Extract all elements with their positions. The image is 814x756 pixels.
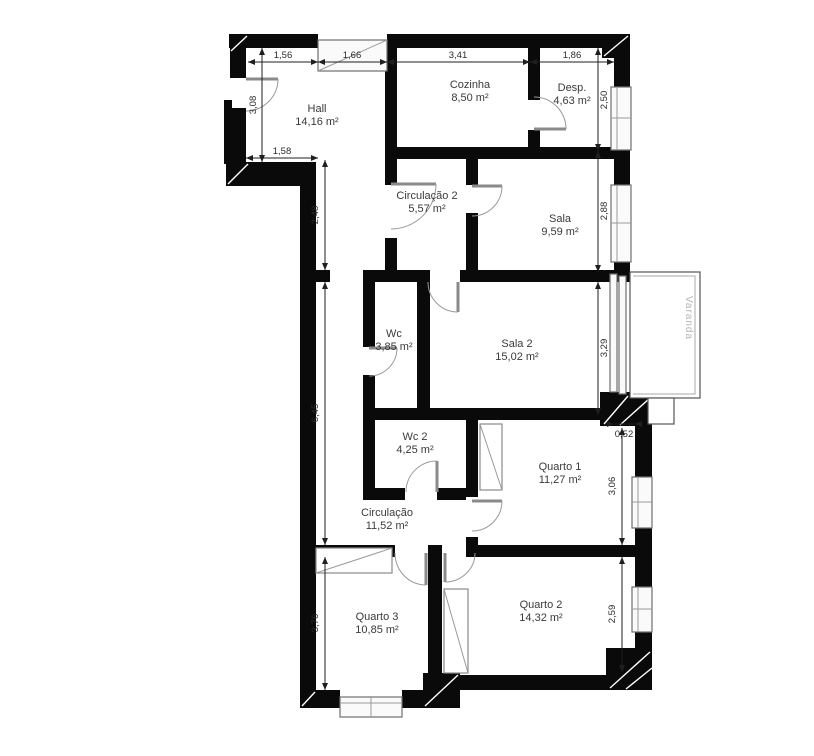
room-name: Cozinha [450,79,491,91]
balcony-label: Varanda [683,296,694,340]
room-label-cozinha: Cozinha 8,50 m² [450,79,491,104]
room-area: 15,02 m² [495,351,539,363]
quarto1-window [632,477,652,528]
dimension-label: 1,58 [273,146,292,157]
room-area: 4,63 m² [553,95,591,107]
room-name: Desp. [558,82,587,94]
room-area: 9,59 m² [541,226,579,238]
room-area: 8,50 m² [451,92,489,104]
quarto3-window [340,697,402,717]
dimension-label: 1,66 [343,50,362,61]
dimension-label: 3,29 [599,339,610,358]
dimension-label: 2,50 [599,91,610,110]
room-label-quarto3: Quarto 3 10,85 m² [355,611,399,636]
room-label-desp: Desp. 4,63 m² [553,82,591,107]
room-area: 5,57 m² [408,203,446,215]
dimension-label: 2,88 [599,202,610,221]
room-area: 11,27 m² [539,474,582,486]
room-name: Quarto 1 [539,461,582,473]
room-area: 11,52 m² [366,520,409,532]
room-label-quarto1: Quarto 1 11,27 m² [539,461,582,486]
quarto3-wardrobe [316,548,392,573]
room-label-sala2: Sala 2 15,02 m² [495,338,539,363]
quarto1-wardrobe [480,424,502,490]
room-name: Hall [308,103,327,115]
room-name: Circulação 2 [396,190,457,202]
room-area: 3,85 m² [375,341,413,353]
room-name: Circulação [361,507,413,519]
dimension-label: 3,41 [449,50,468,61]
room-name: Sala [549,213,572,225]
dimension-label: 3,06 [607,477,618,496]
dimension-label: 1,56 [274,50,293,61]
sala-window [611,185,631,262]
dimension-label: 3,76 [310,614,321,633]
floor-plan: Varanda 1,56 1,66 3,41 1,86 3,08 1,58 2,… [0,0,814,756]
desp-window [611,87,631,150]
room-area: 4,25 m² [396,444,434,456]
room-area: 14,16 m² [295,116,339,128]
room-name: Wc [386,328,402,340]
floor-plan-page: Varanda 1,56 1,66 3,41 1,86 3,08 1,58 2,… [0,0,814,756]
room-name: Quarto 3 [356,611,399,623]
quarto2-wardrobe [444,589,468,673]
dimension-label: 2,59 [607,605,618,624]
dimension-label: 2,48 [310,206,321,225]
room-name: Quarto 2 [520,599,563,611]
dimension-label: 1,86 [563,50,582,61]
room-area: 14,32 m² [519,612,563,624]
room-area: 10,85 m² [355,624,399,636]
room-name: Wc 2 [402,431,427,443]
room-label-circulacao: Circulação 11,52 m² [361,507,413,532]
room-label-quarto2: Quarto 2 14,32 m² [519,599,563,624]
room-name: Sala 2 [501,338,532,350]
quarto2-window [632,587,652,632]
dimension-label: 3,08 [248,96,259,115]
dimension-label: 6,45 [310,404,321,423]
